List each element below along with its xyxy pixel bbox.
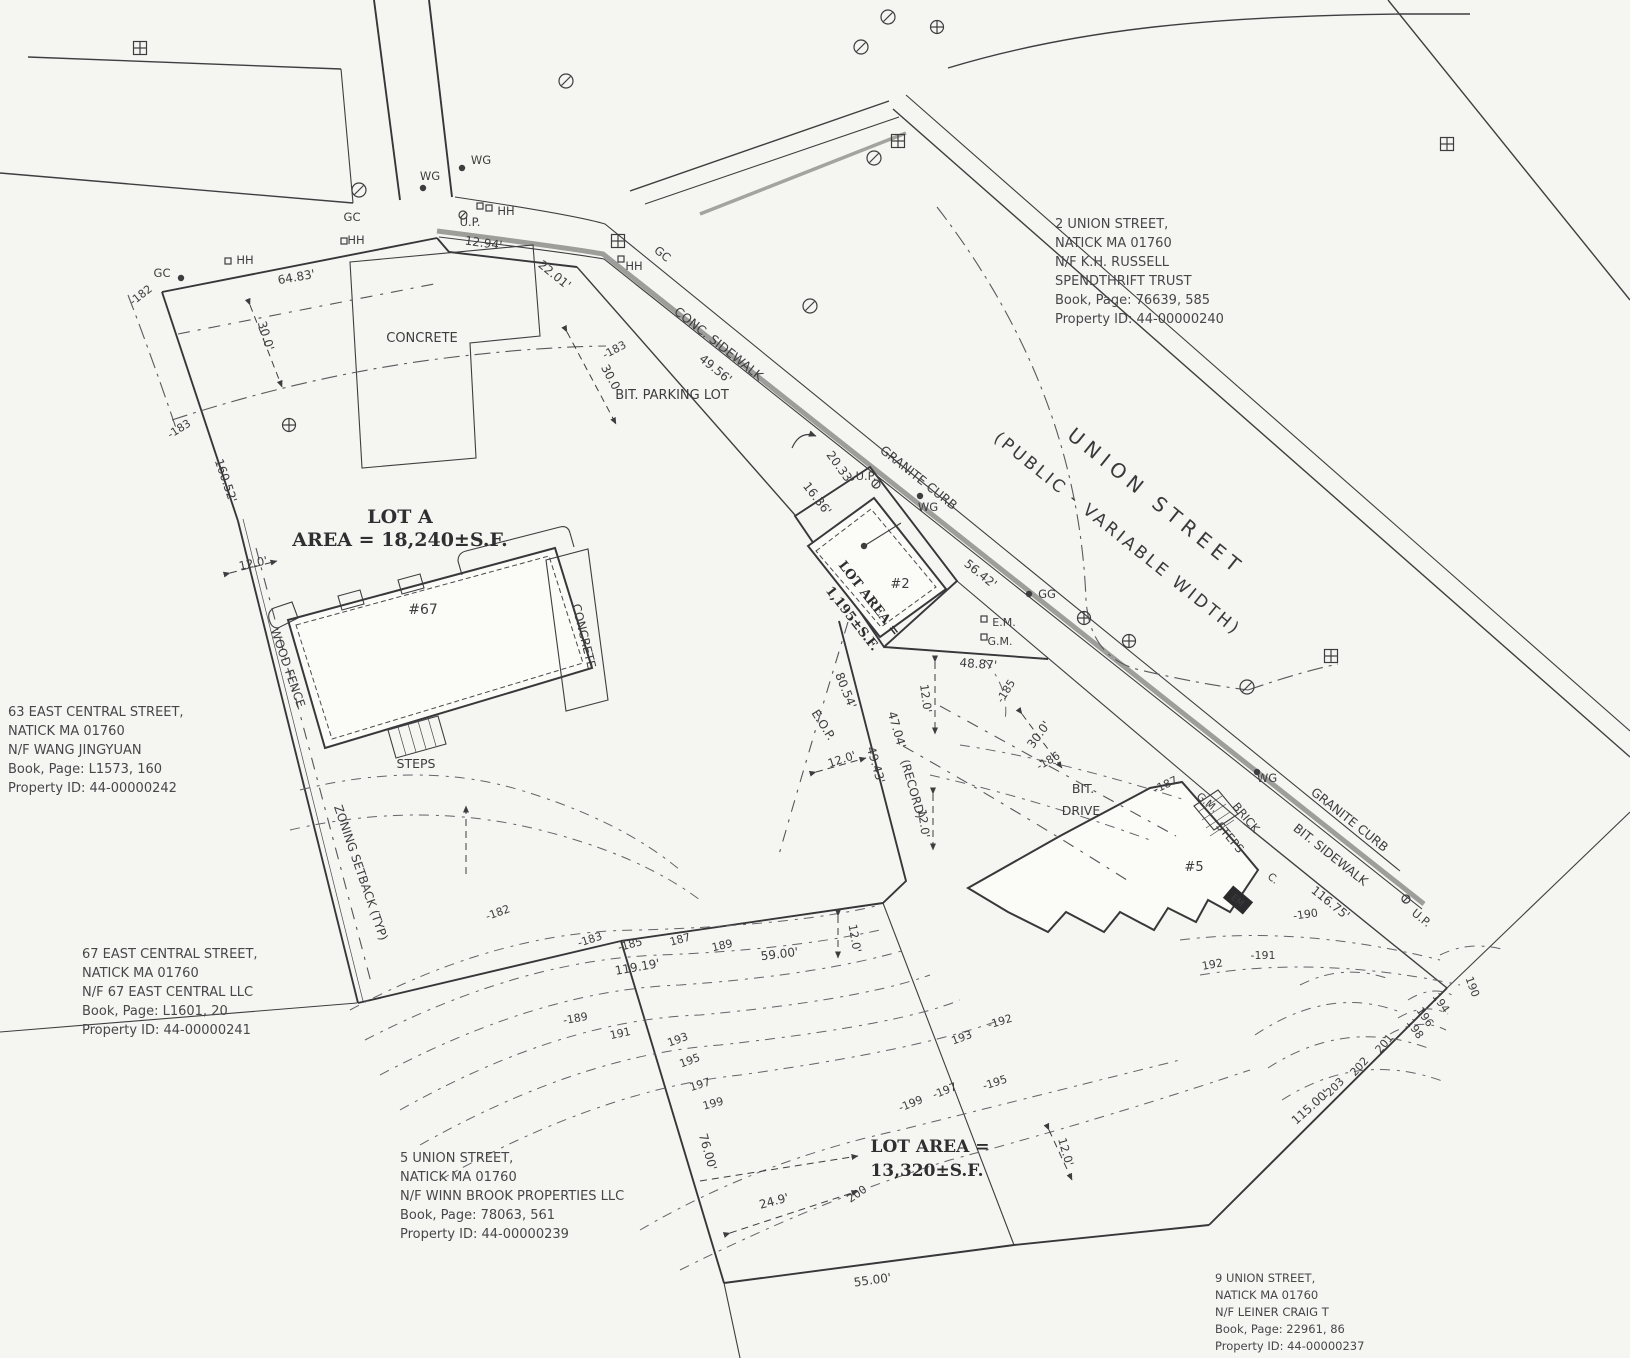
circle-shape xyxy=(861,543,867,549)
annotation-label: 193 xyxy=(666,1030,690,1049)
annotation-label: 12.0' xyxy=(915,808,933,838)
annotation-label: CONCRETE xyxy=(386,331,458,346)
road-edge xyxy=(429,0,452,197)
annotation-label: 199 xyxy=(701,1095,725,1113)
annotation-label: 190 xyxy=(1463,975,1482,999)
sq-icon xyxy=(981,616,987,622)
annotation-label: -183 xyxy=(165,417,193,441)
parcel-note-line: Property ID: 44-00000240 xyxy=(1055,312,1224,327)
parcel-note-line: NATICK MA 01760 xyxy=(82,966,199,981)
annotation-label: 197 xyxy=(688,1075,712,1094)
parcel-line xyxy=(341,69,353,203)
parcel-note-line: 9 UNION STREET, xyxy=(1215,1271,1315,1285)
boundary-continuation xyxy=(724,1283,740,1358)
annotation-label: -189 xyxy=(562,1010,589,1027)
dot-icon xyxy=(420,185,426,191)
annotation-label: 202 xyxy=(1348,1055,1372,1079)
contour xyxy=(1200,967,1460,985)
square-plus-icon xyxy=(612,235,625,248)
parcel-curve xyxy=(1248,664,1338,690)
annotation-label: U.P. xyxy=(460,215,481,229)
concrete-pad-outline xyxy=(350,245,540,468)
boundary-division xyxy=(883,903,1014,1245)
annotation-label: 201 xyxy=(1373,1032,1396,1056)
annotation-label: 49.43' xyxy=(864,745,888,785)
parcel-note-line: Book, Page: 76639, 585 xyxy=(1055,293,1210,308)
parcel-note-line: Property ID: 44-00000241 xyxy=(82,1023,251,1038)
line-shape xyxy=(355,186,364,195)
annotation-label: #67 xyxy=(408,602,438,618)
boundary-76 xyxy=(621,941,724,1283)
dot-icon xyxy=(459,165,465,171)
lot-a-label: LOT A xyxy=(367,506,433,528)
dim-249 xyxy=(730,1191,858,1233)
parcel-line xyxy=(0,173,353,203)
dot-icon xyxy=(1026,591,1032,597)
line-shape xyxy=(857,43,866,52)
annotation-label: E.M. xyxy=(992,616,1015,629)
circle-slash-icon xyxy=(803,299,817,313)
sq-icon xyxy=(477,203,483,209)
circle-slash-icon xyxy=(867,151,881,165)
annotation-label: 12.0' xyxy=(917,683,935,713)
parcel-note-line: NATICK MA 01760 xyxy=(1215,1288,1318,1302)
annotation-label: #5 xyxy=(1184,860,1203,875)
adjacent-boundary xyxy=(1447,812,1630,988)
circle-plus-icon xyxy=(1078,612,1091,625)
lot-a-label: AREA = 18,240±S.F. xyxy=(291,529,507,551)
lot-boundaries xyxy=(0,238,1630,1358)
annotation-label: GC xyxy=(154,266,171,280)
line-shape xyxy=(806,302,815,311)
boundary-south xyxy=(1014,1225,1209,1245)
annotation-label: HH xyxy=(347,233,364,247)
line-shape xyxy=(562,77,571,86)
annotation-label: BIT. PARKING LOT xyxy=(615,388,729,403)
circle-plus-icon xyxy=(931,21,944,34)
rect-shape xyxy=(477,203,483,209)
parcel-note-2-union: 2 UNION STREET,NATICK MA 01760N/F K.H. R… xyxy=(1055,217,1224,327)
annotation-label: -183 xyxy=(600,338,628,361)
annotation-label: 30.0' xyxy=(1024,718,1053,751)
parcel-line xyxy=(28,57,341,69)
south-boundary-119 xyxy=(358,941,621,1003)
sq-icon xyxy=(618,256,624,262)
lot-5-label: LOT AREA = xyxy=(871,1137,990,1157)
annotation-label: GC xyxy=(652,243,674,265)
road-curve xyxy=(948,14,1470,68)
annotation-label: -185 xyxy=(616,935,643,954)
sq-icon xyxy=(341,238,347,244)
road-edge xyxy=(374,0,400,200)
contour xyxy=(1268,1037,1428,1068)
annotation-label: -197 xyxy=(931,1080,959,1101)
site-plan-svg: EM CONCRETECONC. SIDEWALKBIT. PARKING LO… xyxy=(0,0,1630,1358)
sq-icon xyxy=(225,258,231,264)
granite-curb xyxy=(437,231,1424,904)
parcel-note-line: Book, Page: 78063, 561 xyxy=(400,1208,555,1223)
parcel-note-line: Property ID: 44-00000237 xyxy=(1215,1339,1364,1353)
circle-plus-icon xyxy=(283,419,296,432)
line-shape xyxy=(884,13,893,22)
annotation-label: WG xyxy=(471,153,491,167)
parcel-note-line: Property ID: 44-00000242 xyxy=(8,781,177,796)
circle-shape xyxy=(1026,591,1032,597)
contour xyxy=(1300,972,1392,985)
annotation-label: -203 xyxy=(1320,1075,1347,1102)
parcel-line xyxy=(1388,0,1630,300)
circle-slash-icon xyxy=(559,74,573,88)
annotation-label: 22.01' xyxy=(535,258,573,293)
wood-fence-line xyxy=(238,521,358,1003)
contour-183-upper xyxy=(172,346,606,420)
parcel-note-line: Book, Page: 22961, 86 xyxy=(1215,1322,1345,1336)
parcel-note-line: 63 EAST CENTRAL STREET, xyxy=(8,705,184,720)
contour xyxy=(350,905,880,1010)
dot-icon xyxy=(861,543,867,549)
parcel-note-line: SPENDTHRIFT TRUST xyxy=(1055,274,1192,289)
annotation-label: HH xyxy=(497,204,514,218)
parcel-note-5-union: 5 UNION STREET,NATICK MA 01760N/F WINN B… xyxy=(400,1151,624,1242)
annotation-label: -192 xyxy=(986,1012,1014,1032)
drive-edge xyxy=(940,706,1176,836)
annotation-label: E.O.P. xyxy=(809,707,839,743)
rect-shape xyxy=(486,205,492,211)
annotation-label: -182 xyxy=(484,902,512,923)
parcel-note-63-east-central: 63 EAST CENTRAL STREET,NATICK MA 01760N/… xyxy=(8,705,184,796)
annotation-label: 193 xyxy=(950,1028,974,1047)
wood-fence-line2 xyxy=(243,519,363,1001)
parcel-note-line: NATICK MA 01760 xyxy=(1055,236,1172,251)
annotation-label: -195 xyxy=(981,1073,1009,1093)
rect-shape xyxy=(618,256,624,262)
annotation-label: C. xyxy=(1265,871,1281,887)
annotation-label: 12.0' xyxy=(846,923,865,954)
road-edge xyxy=(645,117,899,204)
annotation-label: 80.54' xyxy=(832,670,859,710)
road-edge xyxy=(630,101,889,191)
parcel-note-line: N/F WINN BROOK PROPERTIES LLC xyxy=(400,1189,624,1204)
annotation-label: 192 xyxy=(1201,956,1224,972)
circle-slash-icon xyxy=(1240,680,1254,694)
annotation-label: 189 xyxy=(711,937,734,954)
annotation-label: STEPS xyxy=(397,756,436,771)
annotation-label: -186 xyxy=(1034,749,1062,773)
parcel-note-line: N/F K.H. RUSSELL xyxy=(1055,255,1170,270)
parcel-note-line: N/F 67 EAST CENTRAL LLC xyxy=(82,985,253,1000)
circle-plus-icon xyxy=(1123,635,1136,648)
building-67 xyxy=(288,548,592,748)
annotation-label: -190 xyxy=(1292,906,1319,922)
rect-shape xyxy=(341,238,347,244)
annotation-label: 12.0' xyxy=(238,553,269,573)
annotation-label: WG xyxy=(1257,771,1277,785)
parcel-note-line: Property ID: 44-00000239 xyxy=(400,1227,569,1242)
annotation-label: 160.52' xyxy=(212,457,240,504)
square-plus-icon xyxy=(1325,650,1338,663)
annotation-label: BIT. xyxy=(1072,781,1094,796)
square-plus-icon xyxy=(134,42,147,55)
annotation-label: 64.83' xyxy=(277,267,317,287)
note-leader xyxy=(700,1156,858,1181)
annotation-label: 47.04' xyxy=(885,710,909,750)
circle-slash-icon xyxy=(352,183,366,197)
south-boundary-59 xyxy=(621,903,883,941)
buildings xyxy=(269,498,1258,932)
annotation-label: BRICK xyxy=(1230,800,1263,836)
annotation-label: GC xyxy=(344,210,361,224)
far-curb xyxy=(906,95,1630,731)
annotation-label: -199 xyxy=(897,1093,925,1114)
dot-icon xyxy=(917,493,923,499)
annotation-label: -185 xyxy=(994,677,1018,705)
lot-a-north-boundary xyxy=(162,238,437,292)
annotation-label: WG xyxy=(420,169,440,183)
circle-shape xyxy=(178,275,184,281)
annotation-label: U.P. xyxy=(1409,906,1434,930)
annotation-label: -182 xyxy=(127,282,155,308)
annotation-label: G.M. xyxy=(987,635,1012,648)
annotation-label: GG xyxy=(1038,587,1056,601)
curb-line xyxy=(700,133,906,214)
circle-slash-icon xyxy=(854,40,868,54)
circle-slash-icon xyxy=(881,10,895,24)
parcel-note-line: Book, Page: L1573, 160 xyxy=(8,762,162,777)
annotation-label: HH xyxy=(625,259,642,273)
lot-5-label: 13,320±S.F. xyxy=(870,1161,983,1181)
line-shape xyxy=(870,154,879,163)
sq-icon xyxy=(486,205,492,211)
dot-icon xyxy=(178,275,184,281)
annotation-label: 119.19' xyxy=(614,956,661,978)
contour xyxy=(1440,946,1505,955)
annotation-label: HH xyxy=(236,253,253,267)
annotation-label: #2 xyxy=(890,577,909,592)
annotation-label: 30.0' xyxy=(255,319,277,352)
annotation-label: 48.87' xyxy=(959,656,998,673)
parcel-note-line: 67 EAST CENTRAL STREET, xyxy=(82,947,258,962)
circle-shape xyxy=(420,185,426,191)
circle-shape xyxy=(459,165,465,171)
square-plus-icon xyxy=(1441,138,1454,151)
zoning-setback-line xyxy=(178,284,434,334)
annotation-label: 12.0' xyxy=(826,748,858,770)
symbols-layer: EM xyxy=(134,10,1454,914)
annotation-label: 59.00' xyxy=(760,945,799,963)
parcel-note-line: 5 UNION STREET, xyxy=(400,1151,513,1166)
contour xyxy=(1255,1003,1400,1035)
eop-line xyxy=(778,622,848,858)
contour xyxy=(1282,1070,1445,1100)
parcel-note-line: NATICK MA 01760 xyxy=(8,724,125,739)
curb-leader xyxy=(792,435,816,449)
parcel-note-line: 2 UNION STREET, xyxy=(1055,217,1168,232)
annotation-label: 16.36' xyxy=(800,479,834,517)
annotation-label: 24.9' xyxy=(758,1190,791,1211)
parcel-note-line: NATICK MA 01760 xyxy=(400,1170,517,1185)
rect-shape xyxy=(225,258,231,264)
parcel-note-67-east-central: 67 EAST CENTRAL STREET,NATICK MA 01760N/… xyxy=(82,947,258,1038)
annotation-label: 195 xyxy=(678,1051,702,1070)
parcel-note-9-union: 9 UNION STREET,NATICK MA 01760N/F LEINER… xyxy=(1215,1271,1364,1353)
annotation-label: WG xyxy=(918,500,938,514)
annotation-label: 55.00' xyxy=(853,1270,892,1289)
parcel-note-line: Book, Page: L1601, 20 xyxy=(82,1004,228,1019)
rect-shape xyxy=(981,616,987,622)
rect-shape xyxy=(981,634,987,640)
annotation-label: U.P. xyxy=(856,469,877,483)
annotation-label: DRIVE xyxy=(1062,803,1101,818)
annotation-label: -191 xyxy=(1251,949,1276,962)
survey-plan-sheet: EM CONCRETECONC. SIDEWALKBIT. PARKING LO… xyxy=(0,0,1630,1358)
sq-icon xyxy=(981,634,987,640)
annotation-label: ZONING SETBACK (TYP) xyxy=(331,803,391,942)
annotation-label: 12.0' xyxy=(1055,1136,1076,1168)
annotation-label: 191 xyxy=(609,1025,632,1042)
annotation-label: 200 xyxy=(845,1183,870,1206)
circle-shape xyxy=(917,493,923,499)
contour xyxy=(420,1000,960,1145)
annotation-label: 76.00' xyxy=(696,1132,720,1172)
parcel-note-line: N/F LEINER CRAIG T xyxy=(1215,1305,1330,1319)
parcel-note-line: N/F WANG JINGYUAN xyxy=(8,743,142,758)
